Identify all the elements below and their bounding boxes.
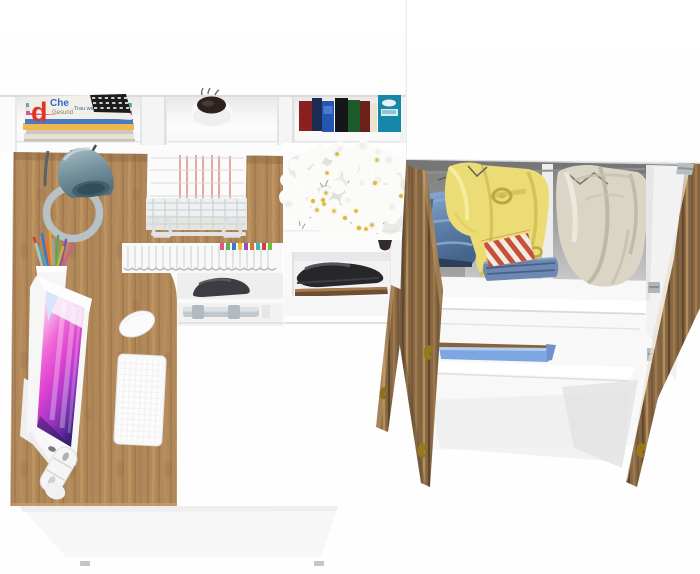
svg-text:Che: Che [50, 98, 69, 109]
svg-text:Gesund: Gesund [52, 110, 73, 116]
svg-text:d: d [31, 97, 48, 127]
